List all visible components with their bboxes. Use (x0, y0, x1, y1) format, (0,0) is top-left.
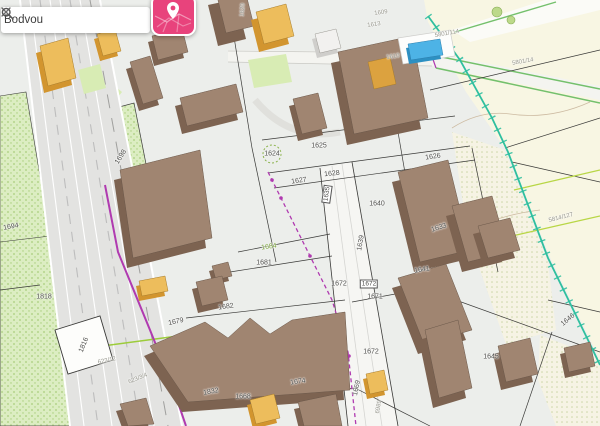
clear-search-button[interactable] (102, 8, 126, 32)
map-viewport[interactable]: 1698 1694 1818 1816 623/12 623/3/4 1832 … (0, 0, 600, 426)
map-layers-button[interactable] (151, 0, 196, 36)
search-input[interactable] (1, 14, 102, 26)
search-bar (1, 7, 150, 33)
search-button[interactable] (126, 8, 150, 32)
building (493, 338, 538, 390)
building (363, 370, 388, 399)
map-canvas[interactable] (0, 0, 600, 426)
search-icon (1, 7, 14, 20)
map-pin-icon (153, 0, 193, 33)
